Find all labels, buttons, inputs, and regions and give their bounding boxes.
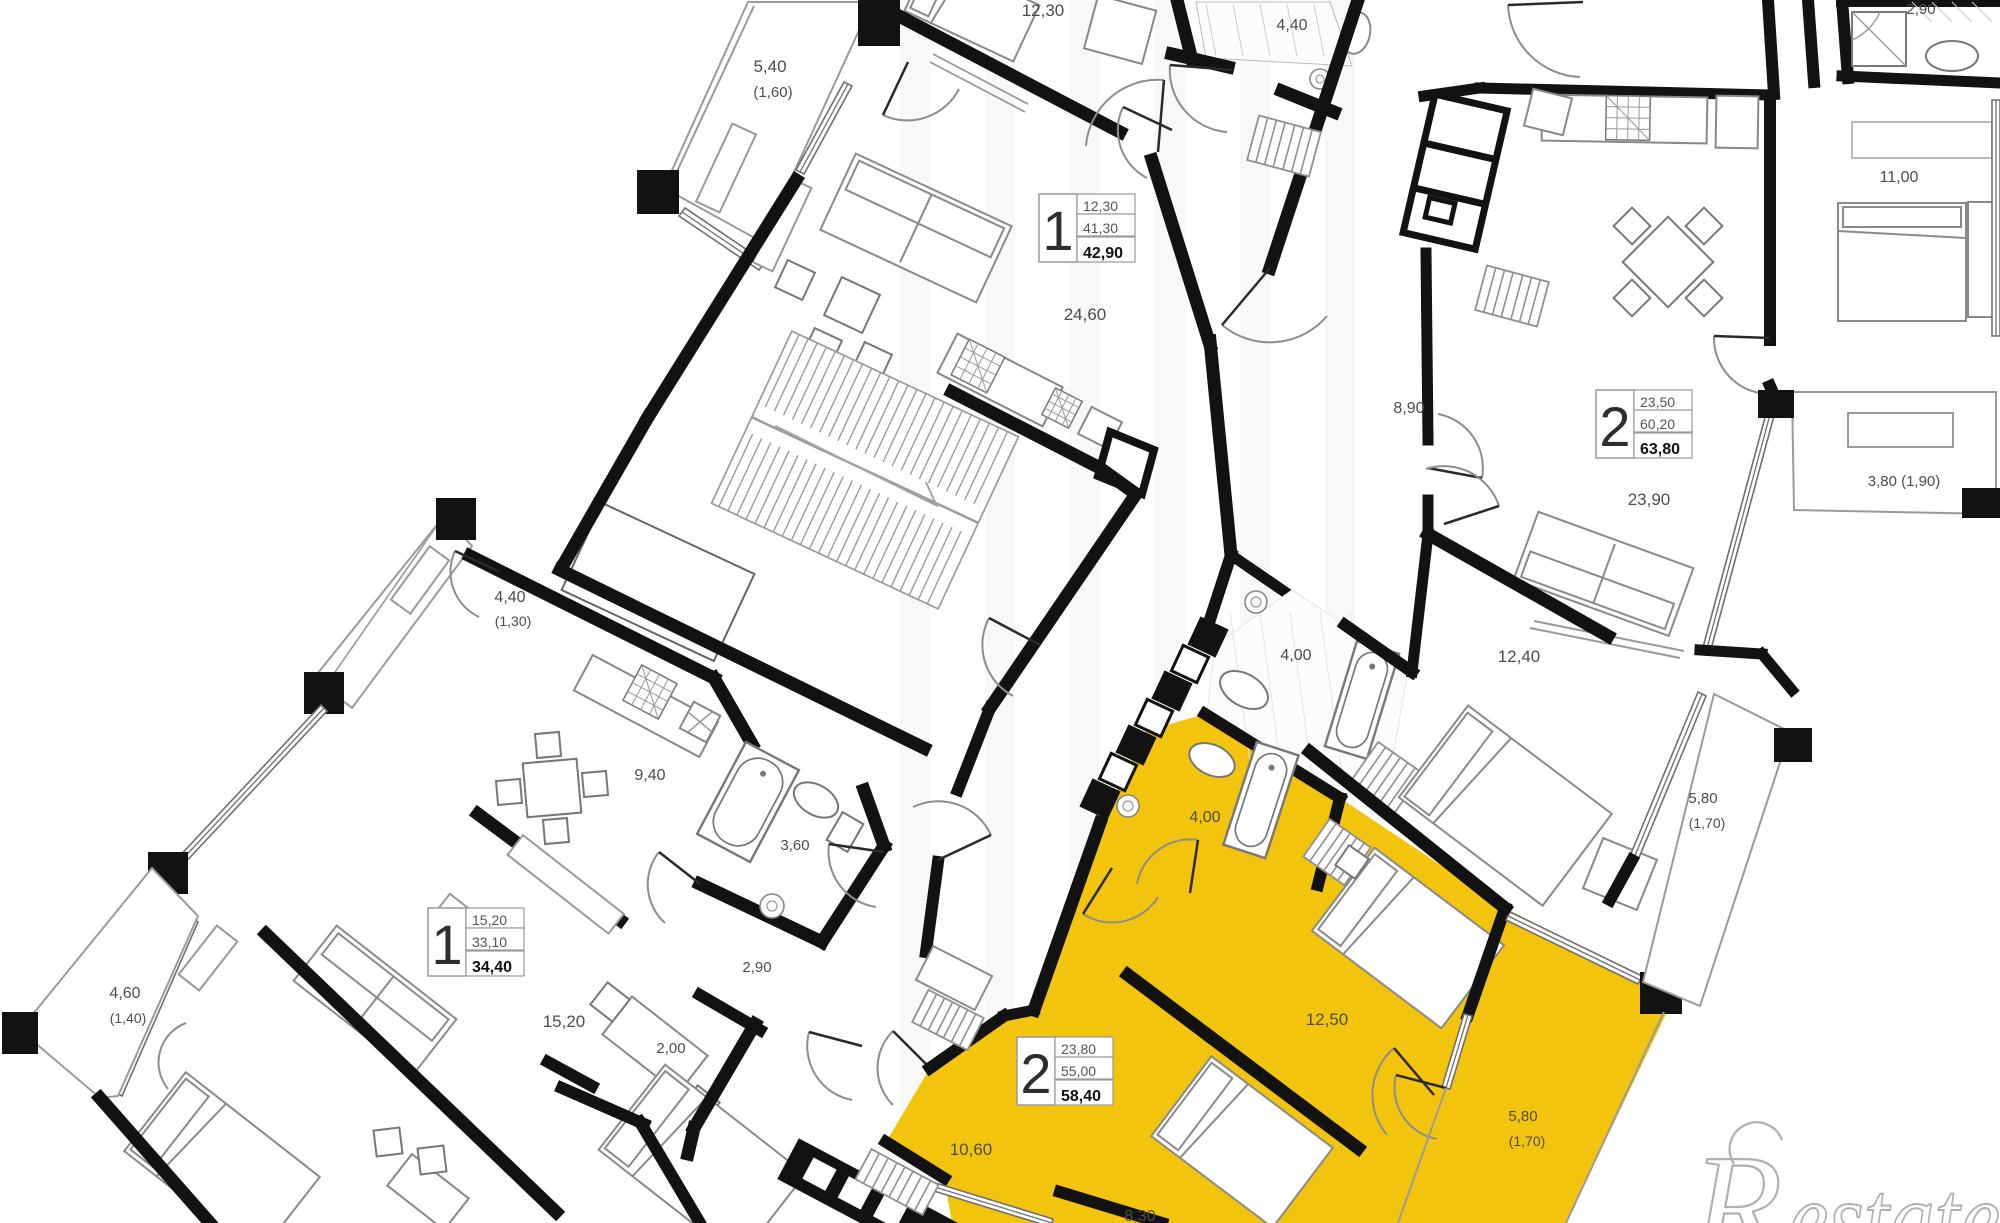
svg-text:12,30: 12,30 bbox=[1083, 198, 1118, 214]
svg-text:3,80 (1,90): 3,80 (1,90) bbox=[1868, 473, 1941, 490]
svg-text:1: 1 bbox=[431, 913, 462, 976]
svg-text:estate: estate bbox=[1788, 1158, 2000, 1223]
svg-text:11,00: 11,00 bbox=[1880, 169, 1919, 186]
svg-text:23,90: 23,90 bbox=[1628, 490, 1671, 509]
svg-text:1: 1 bbox=[1042, 199, 1073, 262]
svg-text:24,60: 24,60 bbox=[1064, 305, 1107, 324]
svg-text:(1,60): (1,60) bbox=[753, 84, 792, 101]
svg-text:4,00: 4,00 bbox=[1280, 647, 1311, 664]
svg-text:12,30: 12,30 bbox=[1022, 1, 1065, 20]
svg-text:23,50: 23,50 bbox=[1640, 394, 1675, 410]
svg-text:41,30: 41,30 bbox=[1083, 220, 1118, 236]
svg-text:60,20: 60,20 bbox=[1640, 416, 1675, 432]
svg-text:(1,40): (1,40) bbox=[110, 1010, 147, 1026]
svg-text:33,10: 33,10 bbox=[472, 934, 507, 950]
svg-text:8,90: 8,90 bbox=[1393, 400, 1424, 417]
svg-text:34,40: 34,40 bbox=[472, 959, 512, 976]
svg-text:4,40: 4,40 bbox=[494, 589, 525, 606]
svg-text:58,40: 58,40 bbox=[1061, 1088, 1101, 1105]
svg-text:5,80: 5,80 bbox=[1508, 1108, 1537, 1125]
svg-text:5,40: 5,40 bbox=[753, 57, 786, 76]
svg-text:(1,70): (1,70) bbox=[1689, 815, 1726, 831]
svg-text:8,30: 8,30 bbox=[1124, 1208, 1155, 1223]
svg-text:5,80: 5,80 bbox=[1688, 790, 1717, 807]
svg-text:15,20: 15,20 bbox=[472, 912, 507, 928]
svg-text:2,90: 2,90 bbox=[1906, 1, 1935, 18]
svg-text:55,00: 55,00 bbox=[1061, 1063, 1096, 1079]
svg-text:2,00: 2,00 bbox=[656, 1040, 685, 1057]
svg-text:63,80: 63,80 bbox=[1640, 441, 1680, 458]
svg-text:4,40: 4,40 bbox=[1276, 17, 1307, 34]
svg-text:10,60: 10,60 bbox=[950, 1140, 993, 1159]
svg-text:(1,70): (1,70) bbox=[1509, 1133, 1546, 1149]
svg-text:2,90: 2,90 bbox=[742, 959, 771, 976]
svg-text:4,00: 4,00 bbox=[1189, 809, 1220, 826]
svg-text:2: 2 bbox=[1599, 395, 1630, 458]
svg-text:(1,30): (1,30) bbox=[495, 613, 532, 629]
svg-text:12,40: 12,40 bbox=[1498, 647, 1541, 666]
svg-text:R: R bbox=[1691, 1125, 1782, 1223]
svg-text:4,60: 4,60 bbox=[109, 985, 140, 1002]
svg-text:15,20: 15,20 bbox=[543, 1012, 586, 1031]
svg-text:9,40: 9,40 bbox=[634, 767, 665, 784]
svg-text:12,50: 12,50 bbox=[1306, 1010, 1349, 1029]
svg-text:23,80: 23,80 bbox=[1061, 1041, 1096, 1057]
svg-text:3,60: 3,60 bbox=[780, 837, 809, 854]
svg-text:42,90: 42,90 bbox=[1083, 245, 1123, 262]
svg-text:2: 2 bbox=[1020, 1042, 1051, 1105]
